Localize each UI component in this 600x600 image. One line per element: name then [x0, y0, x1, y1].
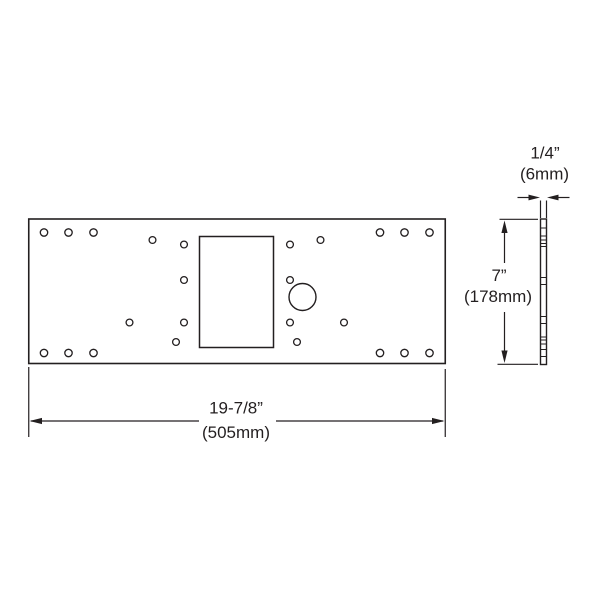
- mounting-hole: [287, 241, 294, 248]
- width-label-imperial: 19-7/8”: [209, 399, 263, 418]
- mounting-hole: [149, 237, 156, 244]
- thickness-arrow-left: [529, 195, 541, 201]
- mounting-hole: [181, 319, 188, 326]
- width-label-metric: (505mm): [202, 423, 270, 442]
- center-cutout: [200, 237, 274, 348]
- mounting-hole: [181, 241, 188, 248]
- mounting-hole: [40, 229, 47, 236]
- mounting-hole: [40, 349, 47, 356]
- thickness-arrow-right: [547, 195, 559, 201]
- mounting-hole: [65, 349, 72, 356]
- mounting-hole: [376, 349, 383, 356]
- mounting-hole: [341, 319, 348, 326]
- mounting-hole: [317, 237, 324, 244]
- drawing-canvas: 19-7/8” (505mm) 1/4” (6mm): [0, 0, 600, 600]
- thickness-dimension: [518, 195, 570, 218]
- dimension-arrow-up: [501, 221, 507, 234]
- mounting-hole: [65, 229, 72, 236]
- side-view: [541, 219, 547, 365]
- dimension-drawing: 19-7/8” (505mm) 1/4” (6mm): [0, 0, 600, 600]
- dimension-arrow-right: [432, 418, 445, 424]
- side-plate-profile: [541, 219, 547, 365]
- mounting-hole: [294, 339, 301, 346]
- height-label-metric: (178mm): [464, 287, 532, 306]
- dimension-arrow-down: [501, 351, 507, 364]
- mounting-hole: [173, 339, 180, 346]
- mounting-hole: [126, 319, 133, 326]
- mounting-hole: [287, 277, 294, 284]
- mounting-hole: [401, 349, 408, 356]
- height-label-imperial: 7”: [491, 266, 506, 285]
- mounting-hole: [426, 349, 433, 356]
- thickness-label-metric: (6mm): [520, 165, 569, 184]
- mounting-hole: [401, 229, 408, 236]
- mounting-hole: [181, 277, 188, 284]
- thickness-label-imperial: 1/4”: [530, 144, 560, 163]
- dimension-arrow-left: [30, 418, 43, 424]
- mounting-hole: [90, 229, 97, 236]
- large-pilot-hole: [289, 284, 316, 311]
- mounting-hole: [287, 319, 294, 326]
- mounting-hole: [90, 349, 97, 356]
- front-view: [29, 219, 446, 364]
- mounting-hole: [376, 229, 383, 236]
- mounting-hole: [426, 229, 433, 236]
